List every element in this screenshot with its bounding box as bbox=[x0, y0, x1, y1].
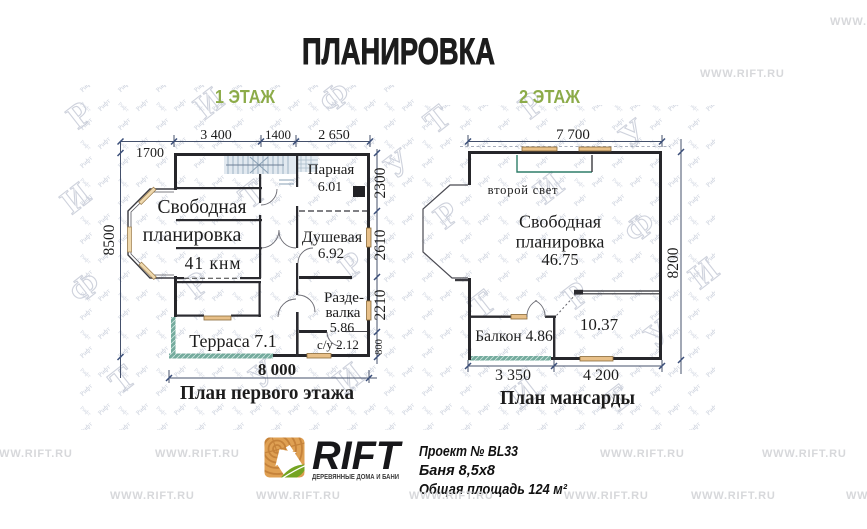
svg-text:планировка: планировка bbox=[516, 232, 605, 252]
svg-text:8 000: 8 000 bbox=[258, 360, 296, 379]
svg-text:1700: 1700 bbox=[136, 146, 164, 161]
svg-text:Терраса 7.1: Терраса 7.1 bbox=[189, 331, 277, 351]
svg-text:Парная: Парная bbox=[308, 162, 355, 178]
svg-text:8200: 8200 bbox=[665, 247, 682, 278]
svg-text:WWW.RIFT.RU: WWW.RIFT.RU bbox=[691, 490, 776, 502]
svg-text:3 400: 3 400 bbox=[200, 128, 232, 143]
svg-text:46.75: 46.75 bbox=[541, 250, 578, 269]
svg-text:План мансарды: План мансарды bbox=[500, 387, 635, 409]
svg-text:WWW.RIFT.RU: WWW.RIFT.RU bbox=[846, 490, 867, 502]
svg-text:Баня 8,5х8: Баня 8,5х8 bbox=[419, 463, 496, 479]
svg-text:5.86: 5.86 bbox=[330, 321, 355, 336]
svg-text:6.92: 6.92 bbox=[318, 246, 344, 262]
svg-text:WWW.RIFT.RU: WWW.RIFT.RU bbox=[110, 490, 195, 502]
svg-text:второй свет: второй свет bbox=[488, 183, 559, 197]
svg-text:WWW.RIFT.RU: WWW.RIFT.RU bbox=[830, 16, 867, 28]
svg-text:Проект № BL33: Проект № BL33 bbox=[419, 444, 518, 460]
svg-text:3 350: 3 350 bbox=[495, 367, 531, 384]
svg-text:WWW.RIFT.RU: WWW.RIFT.RU bbox=[0, 448, 73, 460]
svg-text:ПЛАНИРОВКА: ПЛАНИРОВКА bbox=[302, 31, 495, 72]
svg-text:1 ЭТАЖ: 1 ЭТАЖ bbox=[215, 87, 276, 107]
svg-text:8500: 8500 bbox=[101, 224, 118, 255]
svg-text:WWW.RIFT.RU: WWW.RIFT.RU bbox=[600, 448, 685, 460]
svg-text:2300: 2300 bbox=[372, 167, 389, 198]
svg-text:WWW.RIFT.RU: WWW.RIFT.RU bbox=[564, 490, 649, 502]
svg-text:800: 800 bbox=[374, 339, 385, 355]
svg-text:2 650: 2 650 bbox=[318, 128, 350, 143]
svg-text:10.37: 10.37 bbox=[580, 315, 619, 334]
svg-text:7 700: 7 700 bbox=[556, 127, 590, 143]
svg-text:WWW.RIFT.RU: WWW.RIFT.RU bbox=[155, 448, 240, 460]
svg-text:планировка: планировка bbox=[143, 224, 242, 246]
svg-text:Душевая: Душевая bbox=[302, 229, 363, 246]
svg-text:1400: 1400 bbox=[265, 127, 291, 142]
svg-text:Разде-: Разде- bbox=[324, 290, 364, 306]
svg-text:4 200: 4 200 bbox=[583, 367, 619, 384]
svg-text:Свободная: Свободная bbox=[158, 197, 247, 218]
svg-text:с/у 2.12: с/у 2.12 bbox=[317, 337, 359, 352]
svg-text:2 ЭТАЖ: 2 ЭТАЖ bbox=[519, 87, 581, 107]
svg-text:Свободная: Свободная bbox=[519, 212, 601, 232]
svg-text:ДЕРЕВЯННЫЕ ДОМА И БАНИ: ДЕРЕВЯННЫЕ ДОМА И БАНИ bbox=[312, 474, 399, 481]
svg-text:валка: валка bbox=[326, 305, 361, 321]
svg-text:RIFT: RIFT bbox=[312, 434, 404, 478]
svg-text:WWW.RIFT.RU: WWW.RIFT.RU bbox=[256, 490, 341, 502]
svg-text:2610: 2610 bbox=[372, 229, 389, 260]
svg-text:План первого этажа: План первого этажа bbox=[180, 382, 354, 404]
svg-text:6.01: 6.01 bbox=[318, 180, 343, 195]
svg-text:41 кнм: 41 кнм bbox=[185, 253, 242, 273]
svg-text:WWW.RIFT.RU: WWW.RIFT.RU bbox=[409, 490, 494, 502]
svg-text:WWW.RIFT.RU: WWW.RIFT.RU bbox=[700, 68, 785, 80]
svg-text:WWW.RIFT.RU: WWW.RIFT.RU bbox=[762, 448, 847, 460]
svg-text:2210: 2210 bbox=[372, 289, 389, 320]
svg-text:Балкон 4.86: Балкон 4.86 bbox=[475, 328, 553, 345]
